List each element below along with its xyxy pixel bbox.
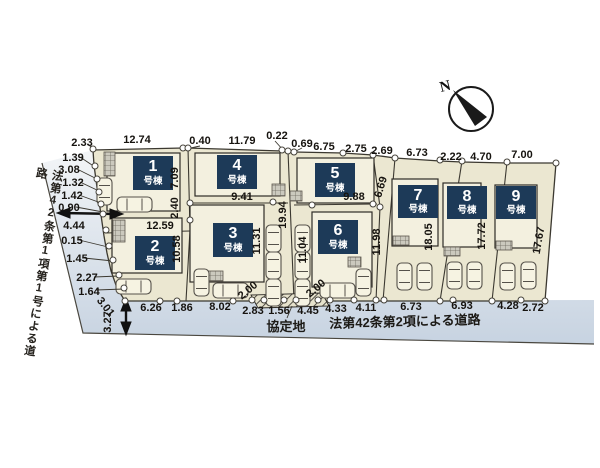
building-number: 1 [149,158,158,175]
building-number: 3 [229,225,238,242]
dim-label: 12.59 [146,220,174,232]
dim-label: 4.45 [297,305,318,317]
dim-label: 4.70 [470,151,491,163]
building-unit: 号棟 [145,255,165,267]
meter-box [348,257,361,267]
car-icon [417,263,432,290]
dim-label: 4.28 [497,300,518,312]
car-icon [266,279,281,306]
building-number: 9 [512,188,521,205]
meter-box [496,241,512,250]
building-unit: 号棟 [328,239,348,251]
building-unit: 号棟 [223,242,243,254]
dim-label: 2.40 [169,197,181,218]
dim-label: 11.04 [297,236,309,264]
building-number: 6 [334,222,343,239]
car-icon [500,263,515,290]
dim-label: 10.58 [171,235,183,263]
dim-label: 1.32 [62,177,83,189]
dim-label: 1.45 [66,253,87,265]
building-unit: 号棟 [227,174,247,186]
dim-label: 7.00 [511,149,532,161]
site-plan-drawing: 1号棟 2号棟 3号棟 4号棟 5号棟 6号棟 7号棟 8号棟 9号棟 [0,0,600,468]
building-unit: 号棟 [457,204,477,216]
building-unit: 号棟 [143,175,163,187]
dim-label: 4.11 [356,302,377,314]
dim-label: 1.86 [171,302,192,314]
dim-label: 0.90 [58,202,79,214]
site-plan: 1号棟 2号棟 3号棟 4号棟 5号棟 6号棟 7号棟 8号棟 9号棟 [0,0,600,468]
building-unit: 号棟 [325,182,345,194]
car-icon [117,197,152,212]
dim-label: 2.75 [345,143,366,155]
dim-label: 2.83 [242,305,263,317]
dim-label: 12.74 [123,134,151,146]
dim-label: 2.69 [371,145,392,157]
building-number: 2 [151,238,160,255]
dim-label: 4.44 [63,220,85,232]
dim-label: 1.39 [62,152,83,164]
dim-label: 2.27 [76,272,97,284]
dim-label: 1.64 [78,286,100,298]
dim-label: 0.15 [61,235,82,247]
dim-label: 6.73 [406,147,427,159]
car-icon [467,262,482,289]
car-icon [266,252,281,279]
car-icon [397,263,412,290]
agreement-area-label: 協定地 [266,319,305,334]
dim-label: 11.79 [229,135,256,147]
car-icon [447,262,462,289]
building-label-3: 3号棟 [213,223,253,257]
building-label-8: 8号棟 [447,186,487,219]
building-number: 7 [414,187,423,204]
building-number: 8 [463,188,472,205]
dim-label: 8.02 [209,301,230,313]
compass-north-label: N [438,78,453,96]
dim-label: 18.05 [423,223,435,251]
car-icon [521,262,536,289]
building-label-1: 1号棟 [133,156,173,190]
meter-box [444,247,460,256]
meter-box [290,191,302,201]
compass: N [438,78,493,131]
dim-label: 7.09 [169,167,181,188]
dim-label: 6.93 [451,300,472,312]
building-label-7: 7号棟 [398,185,438,218]
building-number: 5 [331,165,340,182]
building-unit: 号棟 [408,203,428,215]
dim-label: 2.22 [440,151,461,163]
dim-label: 11.98 [371,229,383,256]
building-label-9: 9号棟 [496,186,536,219]
building-unit: 号棟 [506,204,526,216]
dim-label: 1.42 [61,190,82,202]
dim-label: 3.27 [102,311,114,332]
dim-label: 2.33 [71,137,92,149]
dim-label: 0.40 [189,135,210,147]
building-label-6: 6号棟 [318,220,358,254]
car-icon [356,269,371,296]
meter-box [393,236,409,245]
dim-label: 19.94 [277,200,289,228]
meter-box [104,152,115,176]
dim-label: 1.56 [268,305,289,317]
meter-box [272,184,285,196]
dim-label: 17.72 [476,222,488,250]
building-number: 4 [233,157,242,174]
building-label-4: 4号棟 [217,155,257,189]
dim-label: 6.75 [313,141,334,153]
car-icon [194,269,209,296]
building-label-2: 2号棟 [135,236,175,270]
dim-label: 9.41 [231,191,252,203]
dim-label: 0.69 [291,138,312,150]
dim-label: 9.88 [343,191,364,203]
dim-label: 11.31 [251,228,263,255]
dim-label: 6.26 [140,302,161,314]
dim-label: 4.33 [325,303,346,315]
dim-label: 0.22 [266,130,287,142]
dim-label: 2.72 [522,302,543,314]
meter-box [113,220,125,242]
dim-label: 6.73 [400,301,421,313]
